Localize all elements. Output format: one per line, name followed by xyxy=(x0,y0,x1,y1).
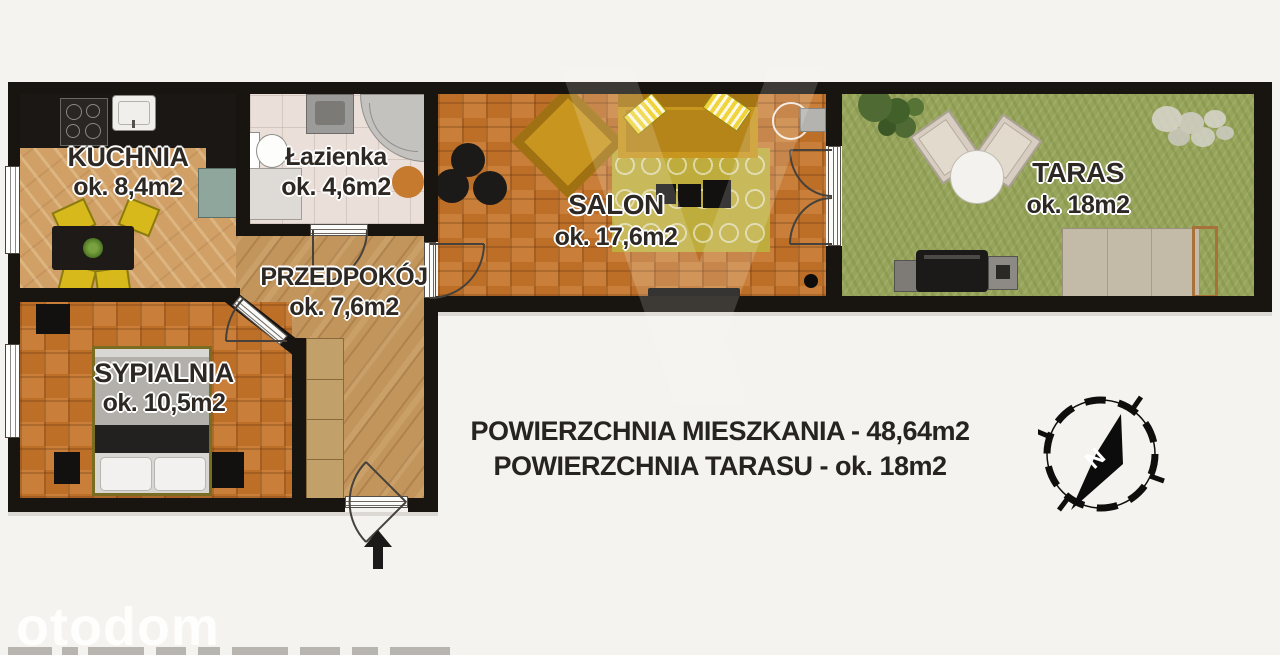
cropped-watermark-row xyxy=(300,647,340,655)
room-label-kuchnia: KUCHNIA ok. 8,4m2 xyxy=(28,142,228,202)
cropped-watermark-row xyxy=(352,647,378,655)
room-label-taras: TARAS ok. 18m2 xyxy=(978,156,1178,220)
apartment-area-text: POWIERZCHNIA MIESZKANIA - 48,64m2 xyxy=(420,414,1020,449)
cropped-watermark-row xyxy=(198,647,220,655)
room-name: SALON xyxy=(516,188,716,222)
cropped-watermark-row xyxy=(390,647,450,655)
room-area: ok. 10,5m2 xyxy=(64,388,264,418)
watermark-mark xyxy=(0,0,1280,655)
room-name: SYPIALNIA xyxy=(64,358,264,388)
room-name: TARAS xyxy=(978,156,1178,190)
cropped-watermark-row xyxy=(156,647,186,655)
room-area: ok. 17,6m2 xyxy=(516,222,716,252)
area-summary: POWIERZCHNIA MIESZKANIA - 48,64m2 POWIER… xyxy=(420,414,1020,484)
cropped-watermark-row xyxy=(88,647,144,655)
cropped-watermark-row xyxy=(8,647,52,655)
room-name: Łazienka xyxy=(246,142,426,172)
terrace-area-text: POWIERZCHNIA TARASU - ok. 18m2 xyxy=(420,449,1020,484)
room-name: KUCHNIA xyxy=(28,142,228,172)
room-area: ok. 18m2 xyxy=(978,190,1178,220)
room-area: ok. 8,4m2 xyxy=(28,172,228,202)
cropped-watermark-row xyxy=(232,647,288,655)
floor-plan: KUCHNIA ok. 8,4m2 Łazienka ok. 4,6m2 PRZ… xyxy=(0,0,1280,655)
room-label-salon: SALON ok. 17,6m2 xyxy=(516,188,716,252)
entrance-arrow-icon xyxy=(364,530,392,570)
room-area: ok. 4,6m2 xyxy=(246,172,426,202)
room-label-sypialnia: SYPIALNIA ok. 10,5m2 xyxy=(64,358,264,418)
room-name: PRZEDPOKÓJ xyxy=(244,262,444,292)
room-label-lazienka: Łazienka ok. 4,6m2 xyxy=(246,142,426,202)
room-area: ok. 7,6m2 xyxy=(244,292,444,322)
cropped-watermark-row xyxy=(62,647,78,655)
compass-icon: N xyxy=(1038,390,1168,520)
room-label-przedpokoj: PRZEDPOKÓJ ok. 7,6m2 xyxy=(244,262,444,322)
